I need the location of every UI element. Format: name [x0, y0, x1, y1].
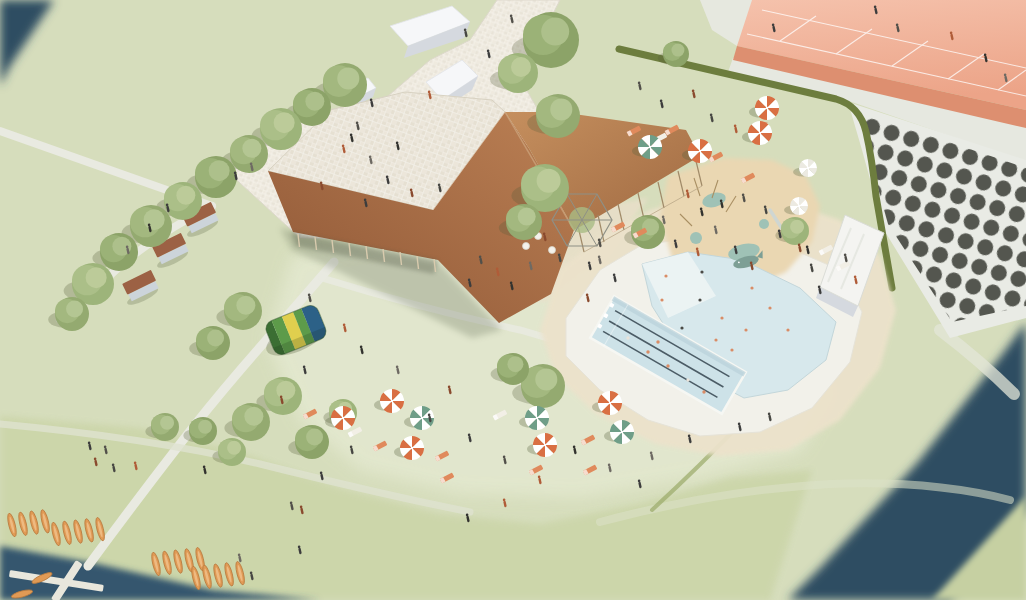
swimmer [744, 328, 747, 331]
swimmer [698, 298, 701, 301]
swimmer [700, 270, 703, 273]
swimmer [720, 316, 723, 319]
swimmer [786, 328, 789, 331]
swimmer [660, 298, 663, 301]
swimmer [768, 306, 771, 309]
park-rendering [0, 0, 1026, 600]
swimmer [750, 286, 753, 289]
swimmer [626, 336, 629, 339]
swimmer [664, 274, 667, 277]
swimmer [680, 326, 683, 329]
splash-pad [690, 232, 702, 244]
swimmer [656, 340, 659, 343]
swimmer [646, 350, 649, 353]
splash-pad [759, 219, 769, 229]
scene-canvas [0, 0, 1026, 600]
swimmer [666, 364, 669, 367]
swimmer [730, 348, 733, 351]
swimmer [714, 338, 717, 341]
swimmer [702, 390, 705, 393]
swimmer [686, 378, 689, 381]
